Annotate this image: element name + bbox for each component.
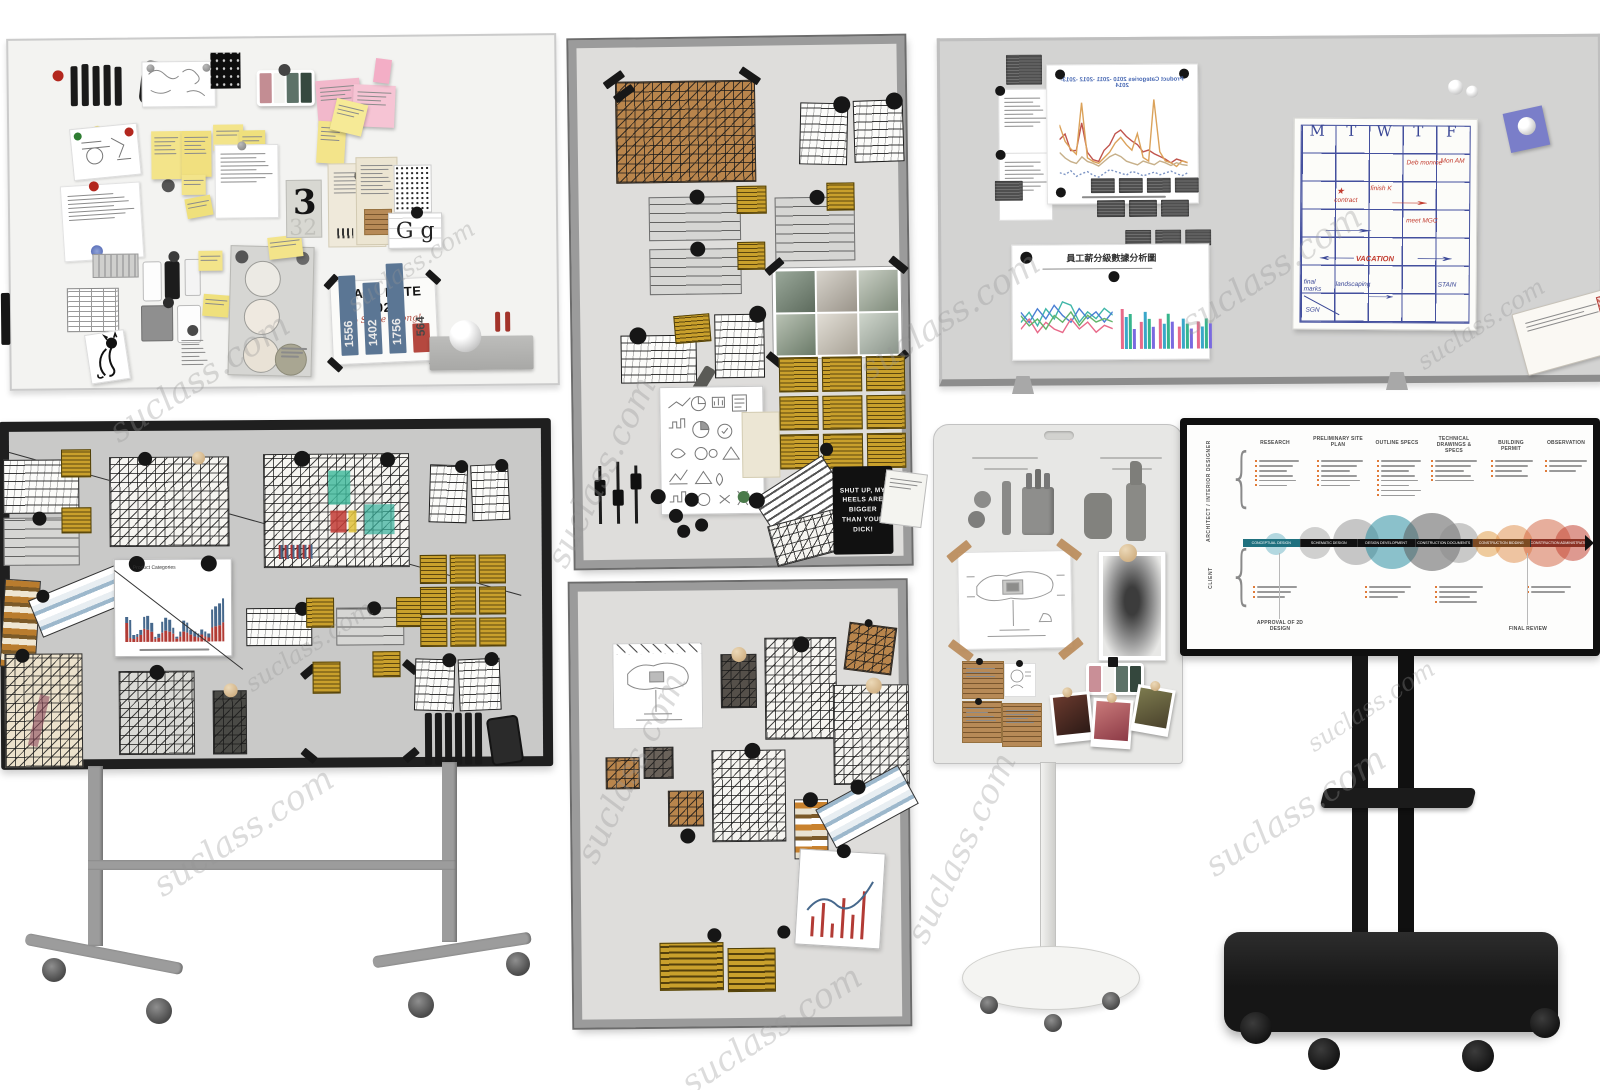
yellow-sticky[interactable] [182, 175, 206, 195]
gold-mesh-card[interactable] [826, 182, 854, 210]
faux-text-line [357, 91, 391, 94]
slider-track[interactable] [598, 466, 602, 524]
gold-card[interactable] [479, 554, 506, 583]
product-categories-chart[interactable]: Product Categories [114, 558, 233, 657]
faux-text-line [221, 173, 273, 175]
slider-knob[interactable] [594, 480, 605, 496]
mesh-paper-dark[interactable] [720, 654, 757, 708]
data-table-card[interactable] [67, 288, 119, 333]
calendar-star: ★ [1336, 187, 1344, 197]
qr-collage-card[interactable] [394, 164, 433, 212]
calendar-day: W [1368, 122, 1401, 140]
bar [1152, 326, 1155, 349]
faux-text-line [357, 95, 386, 98]
sale-rate-poster[interactable]: SALE RATE 2022 do Some wrong! 1556 1402 … [329, 277, 439, 366]
marker[interactable] [70, 66, 77, 106]
brace-top: { [1229, 441, 1254, 515]
gray-magnet [235, 250, 248, 263]
slider-track[interactable] [634, 465, 638, 523]
marker-upright[interactable] [1002, 481, 1011, 535]
handwritten-note[interactable] [179, 335, 209, 379]
mesh-paper-brown[interactable] [668, 790, 704, 826]
tv-stand-base [1224, 932, 1558, 1032]
black-magnet[interactable] [677, 525, 690, 538]
quote-text: SHUT UP, MY HEELS ARE BIGGER THAN YOUR D… [839, 486, 888, 535]
mini-bars-patch [279, 545, 313, 559]
faux-text-line [154, 141, 175, 143]
mesh-paper-brown[interactable] [606, 757, 640, 789]
handwritten-card[interactable] [714, 314, 765, 379]
marker[interactable] [81, 64, 88, 106]
faux-text-line [1435, 475, 1471, 477]
phase-bullets [1259, 457, 1299, 490]
document-page[interactable] [998, 89, 1052, 159]
caster-wheel [1044, 1014, 1062, 1032]
faux-text-line [220, 161, 265, 163]
faux-text-line [1004, 101, 1033, 103]
dark-label-card[interactable] [1006, 55, 1042, 85]
calendar-note: SGN [1305, 307, 1319, 314]
faux-text-line [1495, 460, 1533, 462]
bar-value: 564 [413, 316, 428, 337]
gray-magnet[interactable] [278, 64, 290, 76]
faux-text-line [221, 165, 269, 167]
lined-card[interactable] [429, 464, 469, 523]
gold-card[interactable] [479, 586, 506, 615]
caster-wheel [1308, 1038, 1340, 1070]
faux-text-line [361, 168, 389, 170]
faux-text-line [1005, 177, 1034, 179]
phase-header: BUILDING PERMIT [1489, 441, 1533, 453]
red-marker-tip[interactable] [495, 312, 500, 332]
palette-caption [281, 345, 307, 360]
black-magnet[interactable] [680, 828, 695, 843]
kraft-note[interactable] [962, 701, 1002, 743]
yellow-sticky[interactable] [181, 131, 211, 177]
gray-magnet [168, 251, 179, 262]
faux-text-line [216, 134, 237, 136]
dark-label-card[interactable] [1129, 200, 1157, 217]
caster-wheel [1462, 1040, 1494, 1072]
typed-document[interactable] [214, 144, 279, 219]
faux-text-line [242, 136, 262, 138]
technical-sketch-sheet[interactable] [612, 642, 703, 729]
faux-text-line [1381, 475, 1415, 477]
faux-text-line [1439, 591, 1477, 593]
yellow-sticky[interactable] [202, 294, 230, 318]
cn-dashboard-poster[interactable]: 員工薪分級數據分析圖 [1011, 243, 1210, 360]
dark-label-card[interactable] [1091, 178, 1115, 193]
gold-mesh-card[interactable] [312, 662, 340, 694]
bar [1121, 309, 1124, 349]
connector-line [1527, 553, 1528, 625]
watermark: suclass.com [146, 759, 341, 905]
yellow-sticky[interactable] [184, 195, 213, 219]
faux-text-line [1006, 714, 1034, 716]
interior-photo [776, 314, 816, 356]
phase-bullets [1495, 457, 1533, 480]
envelope[interactable] [1511, 286, 1600, 376]
letter-document[interactable] [60, 181, 145, 262]
marker-cup[interactable] [1022, 487, 1054, 535]
lined-card[interactable] [799, 102, 848, 165]
beige-sheet[interactable] [742, 411, 781, 478]
black-grid-card[interactable] [210, 52, 240, 88]
faux-text-line [200, 255, 220, 257]
black-magnet[interactable] [820, 443, 833, 456]
calendar-day: T [1402, 122, 1435, 140]
faux-text-line [321, 134, 336, 136]
mesh-paper[interactable] [119, 671, 196, 756]
gold-card[interactable] [659, 942, 723, 991]
magnet-gray[interactable] [968, 511, 985, 528]
material-circle [243, 336, 280, 373]
lined-card[interactable] [470, 464, 510, 522]
bar [1197, 321, 1200, 349]
palette-card[interactable] [1086, 663, 1144, 695]
marker-in-cup [1035, 469, 1041, 489]
faux-text-line [1435, 470, 1464, 472]
faux-text-line [361, 164, 393, 166]
marker[interactable] [445, 713, 452, 765]
black-magnet [201, 555, 217, 571]
red-magnet [89, 181, 100, 192]
gold-card[interactable] [823, 395, 863, 430]
technical-sketch-card[interactable] [69, 123, 142, 181]
faux-text-line [220, 157, 256, 159]
edge-marker[interactable] [1, 293, 11, 345]
tray-slot [1100, 457, 1162, 459]
black-magnet [793, 636, 809, 652]
faux-text-line [182, 359, 208, 361]
red-chart-card[interactable] [794, 848, 886, 949]
faux-text-line [889, 485, 911, 489]
black-magnet [32, 512, 46, 526]
gold-mesh-card[interactable] [372, 651, 400, 677]
stacked-bar [161, 622, 164, 642]
black-magnet[interactable] [695, 518, 708, 531]
pin [975, 698, 982, 705]
black-magnet [367, 601, 381, 615]
dark-label-card[interactable] [1175, 177, 1199, 192]
flower-photo[interactable] [1098, 551, 1166, 661]
phase-bullets [1321, 457, 1363, 490]
gold-mesh-card[interactable] [396, 597, 422, 627]
faux-text-line [1435, 460, 1477, 462]
magnet-gray[interactable] [974, 491, 991, 508]
dark-label-card[interactable] [1147, 178, 1171, 193]
number-poster[interactable]: 3 32 [286, 180, 323, 238]
cn-line-plot [1020, 281, 1113, 355]
faux-text-line [1439, 586, 1483, 588]
marker[interactable] [103, 65, 110, 106]
faux-text-line [1006, 718, 1028, 720]
faux-text-line [966, 708, 994, 710]
pin [1016, 660, 1023, 667]
cat-sketch-card[interactable] [84, 329, 131, 384]
yellow-patch [348, 510, 356, 532]
gold-mesh-card[interactable] [736, 186, 766, 214]
faux-text-line [1369, 586, 1411, 588]
gold-card[interactable] [867, 433, 907, 468]
faux-text-line [1381, 485, 1409, 487]
faux-text-line [966, 720, 996, 722]
red-marker-tip[interactable] [505, 312, 510, 332]
interior-photo [858, 270, 898, 312]
gold-card[interactable] [779, 357, 819, 392]
yellow-sticky[interactable] [198, 251, 222, 271]
black-magnet[interactable] [651, 489, 666, 504]
pin [202, 64, 210, 72]
pin [237, 141, 246, 150]
gold-card[interactable] [728, 948, 776, 993]
gold-card[interactable] [450, 586, 477, 615]
whiteboard-top-left: 3 32 G g SALE RATE 2022 do Some wrong! 1… [6, 33, 560, 391]
interior-photo [817, 270, 857, 312]
material-circle [244, 260, 281, 297]
faux-text-line [320, 89, 351, 93]
gold-card[interactable] [420, 555, 447, 584]
lined-card[interactable] [458, 658, 502, 712]
black-magnet [996, 150, 1006, 160]
dark-label-card[interactable] [1097, 200, 1125, 217]
doodle-note[interactable] [1004, 663, 1036, 697]
sale-bar-col: 1756 [385, 263, 406, 354]
gold-card[interactable] [449, 555, 476, 584]
stacked-bar [222, 598, 225, 641]
easel-board [933, 424, 1183, 764]
lane-architect-label: ARCHITECT / INTERIOR DESIGNER [1206, 442, 1212, 542]
gold-card[interactable] [865, 356, 905, 391]
interior-photo-collage[interactable] [772, 266, 903, 360]
phone-mockup-white[interactable] [143, 261, 162, 301]
calendar-note: final marks [1304, 279, 1328, 293]
dark-label-card[interactable] [1161, 200, 1189, 217]
caster-wheel [1530, 1008, 1560, 1038]
gold-mesh-card[interactable] [673, 313, 711, 344]
lined-card[interactable] [246, 608, 312, 646]
bar [1186, 324, 1189, 349]
bar-group [1197, 318, 1212, 348]
faux-text-line [1006, 710, 1038, 712]
timeline-bar: CONCEPTUAL DESIGN SCHEMATIC DESIGN DESIG… [1243, 539, 1587, 547]
line-chart-svg [1059, 95, 1188, 188]
kraft-note[interactable] [1002, 703, 1042, 747]
faux-text-line [966, 676, 995, 678]
film-strip-card[interactable] [92, 254, 138, 278]
slider-knob[interactable] [613, 490, 624, 506]
mesh-paper-dark[interactable] [643, 747, 673, 779]
gold-card[interactable] [779, 396, 819, 431]
faux-text-line [1381, 460, 1421, 462]
stacked-bar [143, 617, 146, 642]
faux-text-line [200, 259, 217, 261]
taped-sketch[interactable] [957, 550, 1073, 650]
marker[interactable] [425, 713, 432, 765]
client-bullets [1369, 583, 1411, 601]
pink-sticky-small[interactable] [373, 58, 392, 84]
mesh-paper-brown[interactable] [615, 80, 756, 184]
phase-bullets [1549, 457, 1587, 475]
dark-label-card[interactable] [995, 181, 1023, 201]
gray-card[interactable] [336, 607, 404, 645]
gold-mesh-card[interactable] [61, 449, 91, 477]
black-magnet [744, 743, 760, 759]
bar [1140, 321, 1143, 349]
gg-text: G g [396, 218, 435, 243]
board-tray [429, 335, 533, 370]
faux-text-line [1259, 485, 1287, 487]
swatch-pink [260, 73, 272, 103]
gray-magnet[interactable] [162, 179, 175, 192]
yellow-sticky[interactable] [151, 131, 182, 179]
gray-card[interactable] [649, 248, 742, 295]
mesh-paper[interactable] [109, 456, 230, 547]
tan-magnet [731, 647, 746, 662]
mesh-paper[interactable] [4, 653, 83, 768]
lane-client-label: CLIENT [1208, 558, 1214, 598]
red-magnet[interactable] [53, 70, 64, 81]
kraft-note[interactable] [962, 661, 1004, 699]
faux-text-line [281, 355, 299, 357]
white-ball-magnet[interactable] [449, 320, 481, 352]
faux-text-line [205, 298, 227, 301]
watermark: suclass.com [1302, 654, 1440, 757]
gold-card[interactable] [420, 618, 447, 647]
connector-line [1279, 553, 1280, 619]
eraser-block[interactable] [1084, 493, 1112, 539]
gold-card[interactable] [822, 356, 862, 391]
phase-header: OUTLINE SPECS [1375, 441, 1419, 447]
typography-card[interactable]: G g [388, 212, 442, 249]
dark-label-card[interactable] [1119, 178, 1143, 193]
rolling-board-frame: Product Categories [0, 418, 553, 770]
timeline-segment: CONSTRUCTION ADMINISTRATION [1531, 539, 1588, 547]
faux-text-line [181, 351, 205, 353]
poster-number-outline: 32 [289, 216, 317, 238]
marker[interactable] [435, 713, 442, 765]
swatch-white [273, 73, 285, 103]
bar [1129, 314, 1132, 349]
gold-mesh-card[interactable] [306, 598, 334, 628]
mesh-paper-brown[interactable] [843, 622, 897, 676]
gray-box-mockup[interactable] [141, 305, 173, 341]
faux-text-line [1259, 465, 1293, 467]
red-streak [28, 694, 50, 747]
faux-text-line [221, 177, 266, 179]
faux-text-line [221, 169, 257, 171]
polaroid-photo[interactable] [1130, 684, 1176, 737]
black-magnet [163, 297, 174, 308]
marker[interactable] [92, 66, 99, 106]
mesh-paper-dark[interactable] [213, 690, 247, 754]
lined-card[interactable] [853, 99, 905, 163]
mesh-paper[interactable] [764, 637, 837, 740]
black-magnet [864, 619, 873, 628]
faux-text-line [966, 712, 988, 714]
faux-text-line [1006, 722, 1034, 724]
stacked-bar [136, 634, 139, 642]
faux-text-line [1321, 480, 1360, 482]
black-magnet[interactable] [777, 925, 790, 938]
gold-card[interactable] [450, 618, 477, 647]
black-magnet[interactable] [669, 509, 683, 523]
phone-eraser[interactable] [486, 714, 525, 766]
stacked-bar [218, 603, 221, 642]
marker[interactable] [114, 67, 121, 106]
faux-text-line [68, 205, 114, 209]
faux-text-line [181, 355, 199, 357]
calendar-note: meet MGC [1406, 217, 1437, 224]
gold-card[interactable] [420, 586, 447, 615]
calendar-note: VACATION [1356, 255, 1394, 264]
pin [976, 658, 983, 665]
slider-knob[interactable] [630, 473, 641, 489]
faux-text-line [1082, 196, 1166, 198]
marker[interactable] [465, 713, 472, 765]
material-palette-sheet[interactable] [227, 245, 314, 377]
tv-stand-shelf [1320, 788, 1477, 808]
faux-text-line [966, 672, 990, 674]
calendar-note: Deb monroe [1407, 159, 1443, 166]
mesh-collage[interactable] [263, 453, 410, 568]
hand-drawn-calendar[interactable]: M T W T F Deb monroe Mon AM ★ contract f… [1292, 118, 1477, 331]
faux-text-line [1439, 596, 1470, 598]
phone-mockup-black[interactable] [165, 261, 180, 299]
faux-text-line [1321, 485, 1350, 487]
tape-corner [402, 747, 419, 763]
faux-text-line [184, 152, 206, 154]
faux-text-line [184, 183, 201, 185]
stacked-bar [168, 620, 171, 642]
faux-text-line [1004, 121, 1040, 123]
gold-mesh-card[interactable] [737, 242, 765, 270]
faux-text-line [1369, 596, 1398, 598]
gold-mesh-card[interactable] [61, 507, 91, 533]
brace-bottom: { [1229, 539, 1254, 613]
stacked-bar [154, 636, 157, 642]
photo-image [1135, 688, 1173, 729]
caster-wheel [1240, 1012, 1272, 1044]
faux-text-line [69, 217, 115, 221]
gold-card[interactable] [866, 394, 906, 429]
stand-leg-left [88, 766, 103, 946]
black-magnet[interactable] [707, 928, 721, 942]
spray-bottle[interactable] [1126, 483, 1146, 541]
line-chart-svg [1020, 281, 1112, 350]
sketch-sheet[interactable] [141, 61, 215, 108]
lined-card[interactable] [414, 658, 455, 711]
sale-bars: 1556 1402 1756 564 [337, 256, 429, 356]
gold-card[interactable] [480, 618, 507, 647]
polaroid-photo[interactable] [1090, 698, 1133, 750]
stacked-bar [157, 634, 160, 642]
white-ball-magnet[interactable] [1466, 86, 1478, 98]
marker[interactable] [475, 713, 482, 765]
polaroid-photo[interactable] [1050, 691, 1095, 744]
tray-slot [972, 457, 1038, 459]
purple-sticky[interactable] [1503, 105, 1551, 153]
small-note-card[interactable] [880, 469, 928, 528]
interior-photo [859, 313, 899, 355]
mesh-paper[interactable] [711, 750, 786, 843]
slider-track[interactable] [616, 462, 620, 524]
black-magnet [484, 652, 499, 667]
white-ball-magnet[interactable] [1448, 80, 1463, 95]
gray-card[interactable] [649, 196, 742, 241]
timeline-segment: SCHEMATIC DESIGN [1301, 539, 1359, 547]
marker[interactable] [455, 713, 462, 765]
